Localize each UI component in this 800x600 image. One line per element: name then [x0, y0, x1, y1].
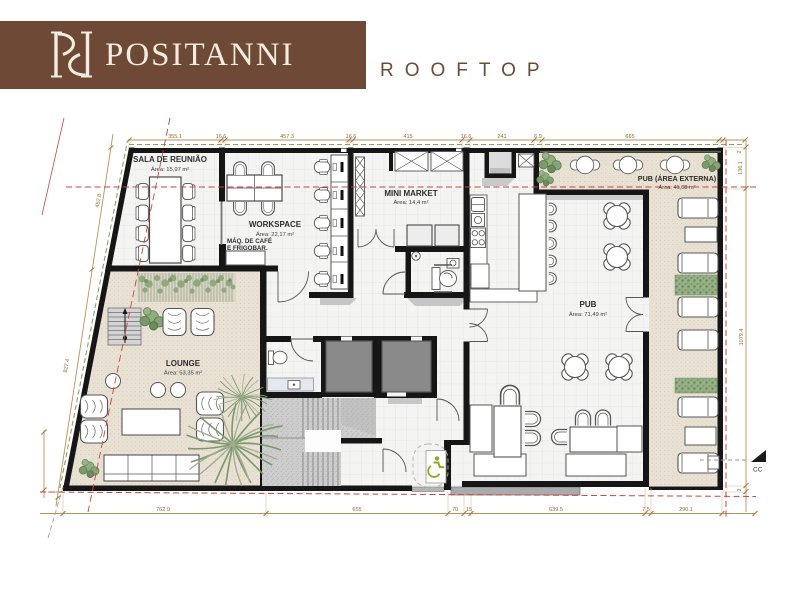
svg-text:355.1: 355.1 [168, 134, 182, 140]
svg-text:16.6: 16.6 [346, 134, 357, 140]
svg-text:Área: 14,4 m²: Área: 14,4 m² [393, 199, 428, 206]
svg-text:Área: 22,17 m²: Área: 22,17 m² [256, 231, 294, 238]
svg-text:665: 665 [625, 134, 634, 140]
svg-text:SALA DE REUNIÃO: SALA DE REUNIÃO [133, 155, 207, 164]
svg-text:POSITANNI: POSITANNI [105, 37, 295, 73]
svg-text:E FRIGOBAR.: E FRIGOBAR. [227, 245, 268, 252]
svg-text:Área: 53,35 m²: Área: 53,35 m² [164, 370, 202, 377]
svg-text:15: 15 [466, 507, 472, 513]
svg-text:CC: CC [753, 467, 763, 474]
svg-text:7.5: 7.5 [642, 507, 650, 513]
svg-text:241: 241 [497, 134, 506, 140]
svg-text:MÁQ. DE CAFÉ: MÁQ. DE CAFÉ [227, 237, 272, 245]
svg-text:PUB: PUB [580, 300, 597, 309]
svg-text:655: 655 [352, 507, 361, 513]
svg-text:1079.4: 1079.4 [739, 329, 745, 346]
svg-text:70: 70 [452, 507, 458, 513]
svg-text:WORKSPACE: WORKSPACE [249, 220, 302, 229]
svg-text:ROOFTOP: ROOFTOP [380, 60, 551, 81]
svg-text:2: 2 [737, 150, 743, 153]
svg-text:16.6: 16.6 [216, 134, 227, 140]
svg-text:LOUNGE: LOUNGE [166, 359, 201, 368]
svg-text:Área: 71,49 m²: Área: 71,49 m² [569, 311, 607, 318]
svg-text:639.5: 639.5 [549, 507, 563, 513]
svg-text:290.1: 290.1 [679, 507, 693, 513]
svg-text:136.1: 136.1 [738, 161, 744, 175]
svg-text:2: 2 [737, 488, 743, 491]
svg-text:16.6: 16.6 [461, 134, 472, 140]
svg-text:457.3: 457.3 [280, 134, 294, 140]
svg-text:415: 415 [403, 134, 412, 140]
svg-text:Área: 15,97 m²: Área: 15,97 m² [151, 166, 189, 173]
svg-text:6.9: 6.9 [534, 134, 542, 140]
svg-text:PUB (ÁREA EXTERNA): PUB (ÁREA EXTERNA) [638, 174, 717, 183]
svg-text:MINI MARKET: MINI MARKET [384, 189, 437, 198]
svg-text:762.9: 762.9 [156, 507, 170, 513]
